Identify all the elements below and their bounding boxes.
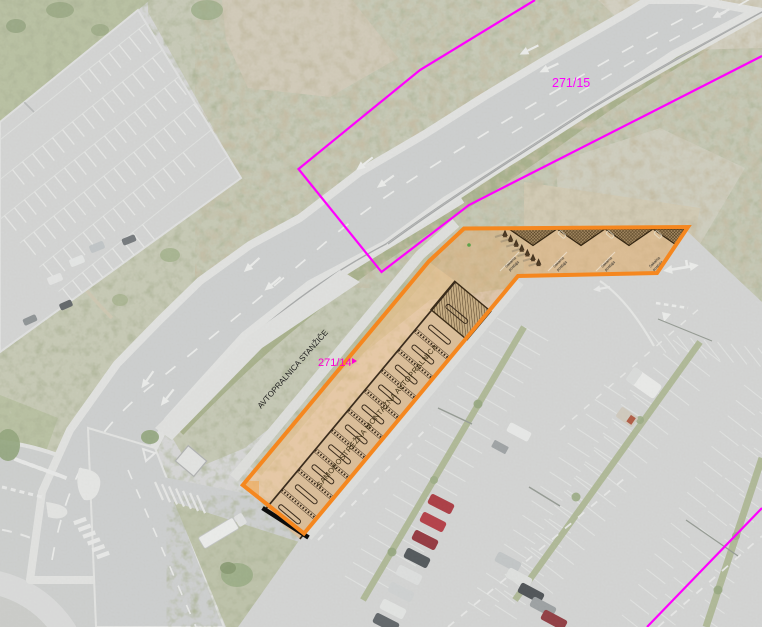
svg-text:271/14: 271/14	[318, 357, 352, 369]
svg-text:271/15: 271/15	[552, 76, 590, 90]
